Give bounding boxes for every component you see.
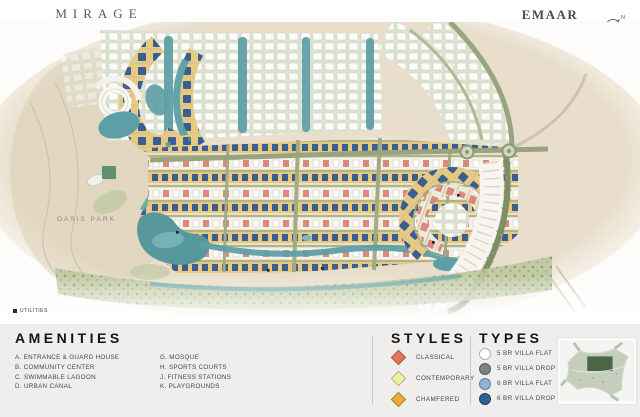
type-item: 5 BR VILLA FLAT — [479, 346, 556, 361]
oasis-park-label: OASIS PARK — [57, 216, 116, 223]
style-swatch-diamond — [391, 391, 407, 407]
amenity-item: G. MOSQUE — [160, 353, 305, 363]
type-swatch-circle — [479, 378, 491, 390]
type-item: 6 BR VILLA DROP — [479, 391, 556, 406]
styles-title: STYLES — [391, 330, 475, 346]
style-label: CHAMFERED — [416, 396, 459, 403]
styles-section: STYLES CLASSICAL CONTEMPORARY CHAMFERED — [391, 330, 475, 409]
amenity-item: C. SWIMMABLE LAGOON — [15, 373, 160, 383]
legend-divider — [372, 336, 373, 404]
style-label: CLASSICAL — [416, 354, 454, 361]
svg-text:N: N — [621, 15, 625, 21]
style-swatch-diamond — [391, 370, 407, 386]
amenity-item: J. FITNESS STATIONS — [160, 373, 305, 383]
type-label: 5 BR VILLA FLAT — [497, 350, 552, 357]
bottom-fade — [0, 274, 640, 322]
masterplan-svg: OASIS PARK — [0, 22, 640, 322]
amenity-item: K. PLAYGROUNDS — [160, 382, 305, 392]
utilities-label: UTILITIES — [20, 308, 48, 314]
type-label: 5 BR VILLA DROP — [497, 365, 556, 372]
legend-divider — [470, 336, 471, 404]
brand-name: MIRAGE — [38, 6, 160, 22]
utilities-square-icon — [13, 309, 17, 313]
amenities-section: AMENITIES A. ENTRANCE & GUARD HOUSE B. C… — [15, 330, 305, 392]
style-item: CLASSICAL — [391, 347, 475, 367]
developer-logo: EMAAR — [518, 7, 582, 23]
pond — [302, 235, 312, 241]
style-item: CONTEMPORARY — [391, 368, 475, 388]
amenities-title: AMENITIES — [15, 330, 305, 346]
amenities-column-1: A. ENTRANCE & GUARD HOUSE B. COMMUNITY C… — [15, 353, 160, 392]
amenities-column-2: G. MOSQUE H. SPORTS COURTS J. FITNESS ST… — [160, 353, 305, 392]
site-locator-thumbnail — [557, 337, 637, 405]
type-swatch-circle — [479, 348, 491, 360]
types-title: TYPES — [479, 330, 556, 346]
legend-strip: AMENITIES A. ENTRANCE & GUARD HOUSE B. C… — [0, 324, 640, 417]
amenity-item: D. URBAN CANAL — [15, 382, 160, 392]
style-swatch-diamond — [391, 349, 407, 365]
site-locator-svg — [560, 340, 634, 402]
type-label: 6 BR VILLA DROP — [497, 395, 556, 402]
amenity-item: B. COMMUNITY CENTER — [15, 363, 160, 373]
type-swatch-circle — [479, 393, 491, 405]
masterplan-map: OASIS PARK — [0, 22, 640, 322]
type-swatch-circle — [479, 363, 491, 375]
utilities-key: UTILITIES — [13, 308, 48, 314]
style-item: CHAMFERED — [391, 389, 475, 409]
style-label: CONTEMPORARY — [416, 375, 475, 382]
type-item: 6 BR VILLA FLAT — [479, 376, 556, 391]
types-section: TYPES 5 BR VILLA FLAT 5 BR VILLA DROP 6 … — [479, 330, 556, 406]
amenity-item: H. SPORTS COURTS — [160, 363, 305, 373]
type-label: 6 BR VILLA FLAT — [497, 380, 552, 387]
type-item: 5 BR VILLA DROP — [479, 361, 556, 376]
sports-courts — [102, 166, 116, 179]
amenity-item: A. ENTRANCE & GUARD HOUSE — [15, 353, 160, 363]
